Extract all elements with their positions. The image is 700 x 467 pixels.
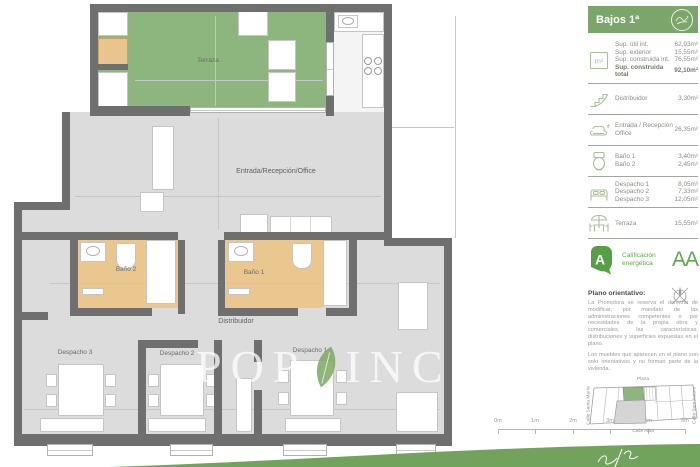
summary-label: Sup. construida int. xyxy=(615,56,670,64)
disclaimer: Plano orientativo: La Promotora se reser… xyxy=(588,290,698,372)
floor-plan: Terraza Entrada/Recepción/Office Baño 2 … xyxy=(0,0,560,467)
room-label-despacho1: Despacho 1 xyxy=(293,347,328,354)
room-label-terraza: Terraza xyxy=(197,57,219,64)
room-list-value: 15,55m² xyxy=(675,220,698,228)
pillar xyxy=(140,192,164,212)
chair xyxy=(46,374,57,387)
wall-segment xyxy=(14,202,70,210)
toilet xyxy=(292,243,312,269)
wall-segment xyxy=(326,308,357,316)
chair xyxy=(46,394,57,407)
wall-segment xyxy=(384,238,452,246)
energy-label: Calificación energética xyxy=(622,252,656,268)
footer-swoosh xyxy=(0,441,700,467)
wall-segment xyxy=(178,240,185,314)
glass-door xyxy=(326,42,334,96)
disclaimer-paragraph: Los muebles que aparecen en el plano son… xyxy=(588,352,698,372)
room-list-value: 26,35m² xyxy=(675,126,698,134)
stove-burner xyxy=(374,67,382,75)
room-list-value: 3,40m² xyxy=(678,153,698,161)
radiator xyxy=(82,288,104,295)
scale-tick xyxy=(573,429,574,434)
chair xyxy=(278,392,289,405)
floorplan-page: Terraza Entrada/Recepción/Office Baño 2 … xyxy=(0,0,700,467)
room-label-despacho2: Despacho 2 xyxy=(160,350,195,357)
room-label-distribuidor: Distribuidor xyxy=(218,318,253,325)
stove-burner xyxy=(364,67,372,75)
sink-basin xyxy=(342,17,354,25)
sidebar-header: Bajos 1ª xyxy=(588,6,698,33)
room-list-label: Despacho 2 xyxy=(615,188,649,196)
scale-tick xyxy=(498,429,499,434)
room-list-label: Baño 2 xyxy=(615,161,635,169)
summary-value: 92,10m² xyxy=(674,67,698,75)
room-label-bano1: Baño 1 xyxy=(244,269,265,276)
street-label-bottom: Calle Alba xyxy=(632,429,654,434)
dimension-line xyxy=(75,196,381,197)
scale-tick xyxy=(535,429,536,434)
closet-box xyxy=(98,12,128,36)
wall-segment xyxy=(349,240,357,314)
room-list-label: Distribuidor xyxy=(615,95,647,103)
wall-segment xyxy=(384,4,392,146)
row-banos: Baño 13,40m² Baño 22,45m² xyxy=(588,145,698,176)
room-list-label: Terraza xyxy=(615,220,636,228)
street-label-right: Calle Sant Antoni xyxy=(693,373,698,439)
disclaimer-paragraph: La Promotora se reserva el derecho de mo… xyxy=(588,300,698,347)
desk xyxy=(58,364,104,416)
radiator xyxy=(228,288,250,295)
dimension-line xyxy=(218,118,219,230)
summary-value: 76,55m² xyxy=(675,56,698,64)
wall-segment xyxy=(22,232,178,240)
chair xyxy=(148,394,159,407)
cabinet xyxy=(148,418,206,432)
wall-segment xyxy=(70,240,78,314)
chair xyxy=(148,374,159,387)
sofa-icon xyxy=(588,119,615,141)
disclaimer-heading: Plano orientativo: xyxy=(588,290,698,297)
wardrobe xyxy=(152,126,174,190)
wall-segment xyxy=(14,202,22,446)
sidebar: Bajos 1ª m² Sup. útil int.62,93m² Sup. e… xyxy=(588,6,698,439)
svg-text:A: A xyxy=(595,252,605,268)
sliding-window xyxy=(190,107,326,113)
wall-segment xyxy=(384,146,392,246)
terrace-planter xyxy=(238,8,268,36)
wall-segment xyxy=(224,232,384,240)
wall-segment xyxy=(90,4,98,114)
corner-cabinet xyxy=(396,392,438,432)
scale-label: 0m xyxy=(494,418,502,424)
location-map: Plaza Calle Santa María Calle Sant Anton… xyxy=(588,377,698,439)
stove-burner xyxy=(374,57,382,65)
unit-title: Bajos 1ª xyxy=(588,14,639,26)
cabinet xyxy=(40,418,104,432)
room-list-value: 7,33m² xyxy=(678,188,698,196)
hall-cabinet xyxy=(236,378,252,432)
sink-basin xyxy=(234,246,248,256)
room-list-value: 2,45m² xyxy=(678,161,698,169)
room-list-value: 8,05m² xyxy=(678,181,698,189)
wall-segment xyxy=(218,308,298,316)
wall-segment xyxy=(22,312,48,320)
closet-box xyxy=(98,72,128,108)
street-label-left: Calle Santa María xyxy=(587,373,592,439)
scale-label: 1m xyxy=(531,418,539,424)
room-list-label: Entrada / Recepción Office xyxy=(615,122,673,137)
summary-label: Sup. construida total xyxy=(615,64,674,79)
wall-segment xyxy=(90,4,392,12)
entry-cabinet xyxy=(398,282,428,330)
terrace-planter xyxy=(268,40,296,70)
summary-label: Sup. exterior xyxy=(615,49,651,57)
row-entrada: Entrada / Recepción Office 26,35m² xyxy=(588,114,698,145)
wall-segment xyxy=(218,240,225,314)
shower xyxy=(146,240,176,304)
chair xyxy=(336,370,347,383)
svg-text:m²: m² xyxy=(595,56,604,65)
wall-segment xyxy=(214,340,222,434)
chair xyxy=(278,370,289,383)
stove-burner xyxy=(364,57,372,65)
wall-segment xyxy=(326,106,334,116)
terrace-icon xyxy=(588,212,615,234)
room-list-label: Despacho 1 xyxy=(615,181,649,189)
door-opening xyxy=(254,362,262,390)
chair xyxy=(105,394,116,407)
row-distribuidor: Distribuidor3,30m² xyxy=(588,83,698,114)
wall-segment xyxy=(90,64,128,70)
entrada-floor xyxy=(70,112,384,240)
room-list-label: Baño 1 xyxy=(615,153,635,161)
door-opening xyxy=(198,340,214,348)
energy-arrow-icon: A xyxy=(588,244,615,275)
room-label-bano2: Baño 2 xyxy=(116,266,137,273)
site-plan-map xyxy=(585,384,700,434)
desk xyxy=(290,360,334,416)
desk xyxy=(160,364,204,416)
scale-label: 2m xyxy=(569,418,577,424)
row-despachos: Despacho 18,05m² Despacho 27,33m² Despac… xyxy=(588,176,698,208)
stairs-icon xyxy=(588,88,615,110)
street-label-plaza: Plaza xyxy=(637,377,649,382)
wall-segment xyxy=(444,238,452,446)
shower xyxy=(323,240,347,306)
energy-rating-value: AA xyxy=(672,248,698,272)
summary-label: Sup. útil int. xyxy=(615,41,648,49)
room-list-value: 3,30m² xyxy=(678,95,698,103)
closet-door xyxy=(98,38,128,66)
summary-value: 62,93m² xyxy=(675,41,698,49)
m2-icon: m² xyxy=(588,49,615,71)
toilet-icon xyxy=(588,150,615,172)
row-terraza: Terraza15,55m² xyxy=(588,207,698,238)
sink-basin xyxy=(86,246,100,256)
summary-value: 15,55m² xyxy=(675,49,698,57)
surface-summary: m² Sup. útil int.62,93m² Sup. exterior15… xyxy=(588,37,698,83)
cabinet xyxy=(285,418,341,432)
room-label-despacho3: Despacho 3 xyxy=(58,349,93,356)
wall-segment xyxy=(138,340,146,434)
energy-rating: A Calificación energética AA xyxy=(588,238,698,279)
dimension-line xyxy=(392,127,454,128)
chair xyxy=(105,374,116,387)
room-list-value: 12,05m² xyxy=(675,196,698,204)
room-label-entrada: Entrada/Recepción/Office xyxy=(236,168,316,175)
terrace-planter xyxy=(268,72,296,102)
wall-segment xyxy=(90,106,190,116)
brand-badge-icon xyxy=(670,8,694,32)
wall-segment xyxy=(70,308,152,316)
bed-icon xyxy=(588,181,615,203)
chair xyxy=(336,392,347,405)
dimension-line xyxy=(50,283,440,284)
wall-segment xyxy=(62,112,70,210)
room-list-label: Despacho 3 xyxy=(615,196,649,204)
dimension-line xyxy=(455,16,456,238)
